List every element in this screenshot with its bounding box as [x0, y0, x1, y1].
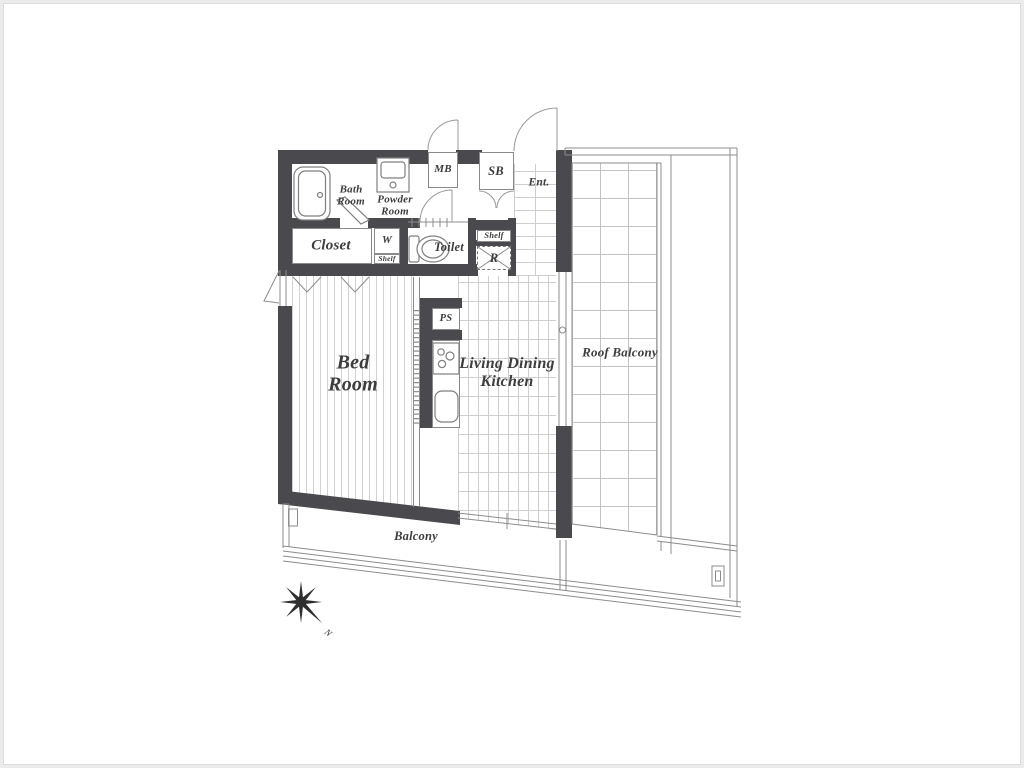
closet-bifold-doors: [341, 277, 369, 292]
roof-balcony-label: Roof Balcony: [582, 346, 658, 361]
meter-box-door-arc: [428, 120, 458, 150]
shoe-box-door-arcs: [479, 191, 514, 208]
balcony-sliding-door: [458, 513, 556, 529]
shoe-box-label: SB: [488, 164, 504, 178]
washer-label: W: [382, 234, 392, 246]
ldk-label: Living Dining Kitchen: [459, 355, 555, 391]
balcony-railing: [283, 504, 741, 617]
fridge-label: R: [490, 251, 499, 265]
window-handle: [560, 327, 566, 333]
closet-label: Closet: [311, 238, 351, 255]
toilet-label: Toilet: [434, 240, 464, 254]
roof-balcony-drain-inner: [716, 571, 721, 581]
bedroom-left-window: [264, 270, 286, 306]
closet-bifold-doors: [293, 277, 321, 292]
bath-room-label: Bath Room: [337, 184, 365, 209]
bed-room-label: Bed Room: [328, 352, 378, 397]
bathtub-faucet: [318, 193, 323, 198]
roof-balcony-outline: [565, 148, 737, 606]
stove-burner: [438, 360, 445, 367]
roof-balcony-drain: [712, 566, 724, 586]
balcony-roof-divider: [560, 540, 566, 591]
wall-bottom-slanted: [278, 490, 460, 525]
washer-shelf-label: Shelf: [378, 255, 395, 263]
balcony-label: Balcony: [394, 529, 438, 543]
entrance-label: Ent.: [529, 177, 550, 190]
stove: [433, 343, 459, 374]
shelf-label: Shelf: [484, 231, 503, 241]
toilet-door: [408, 218, 468, 227]
floor-plan-page: N Bath Room Powder Room MB SB Ent. Close…: [0, 0, 1024, 768]
powder-room-door-arc: [420, 190, 452, 222]
stove-burner: [446, 352, 454, 360]
pipe-space-label: PS: [440, 313, 453, 325]
ldk-right-window: [559, 272, 566, 426]
powder-room-label: Powder Room: [377, 194, 412, 219]
entrance-door-arc: [514, 108, 557, 151]
balcony-partition-post: [289, 509, 298, 526]
basin-drain: [390, 182, 396, 188]
meter-box-label: MB: [434, 163, 452, 175]
basin-bowl: [381, 162, 405, 178]
kitchen-sink: [435, 391, 458, 422]
compass-north-label: N: [322, 626, 335, 639]
stove-burner: [438, 349, 444, 355]
compass-icon: [280, 581, 324, 625]
